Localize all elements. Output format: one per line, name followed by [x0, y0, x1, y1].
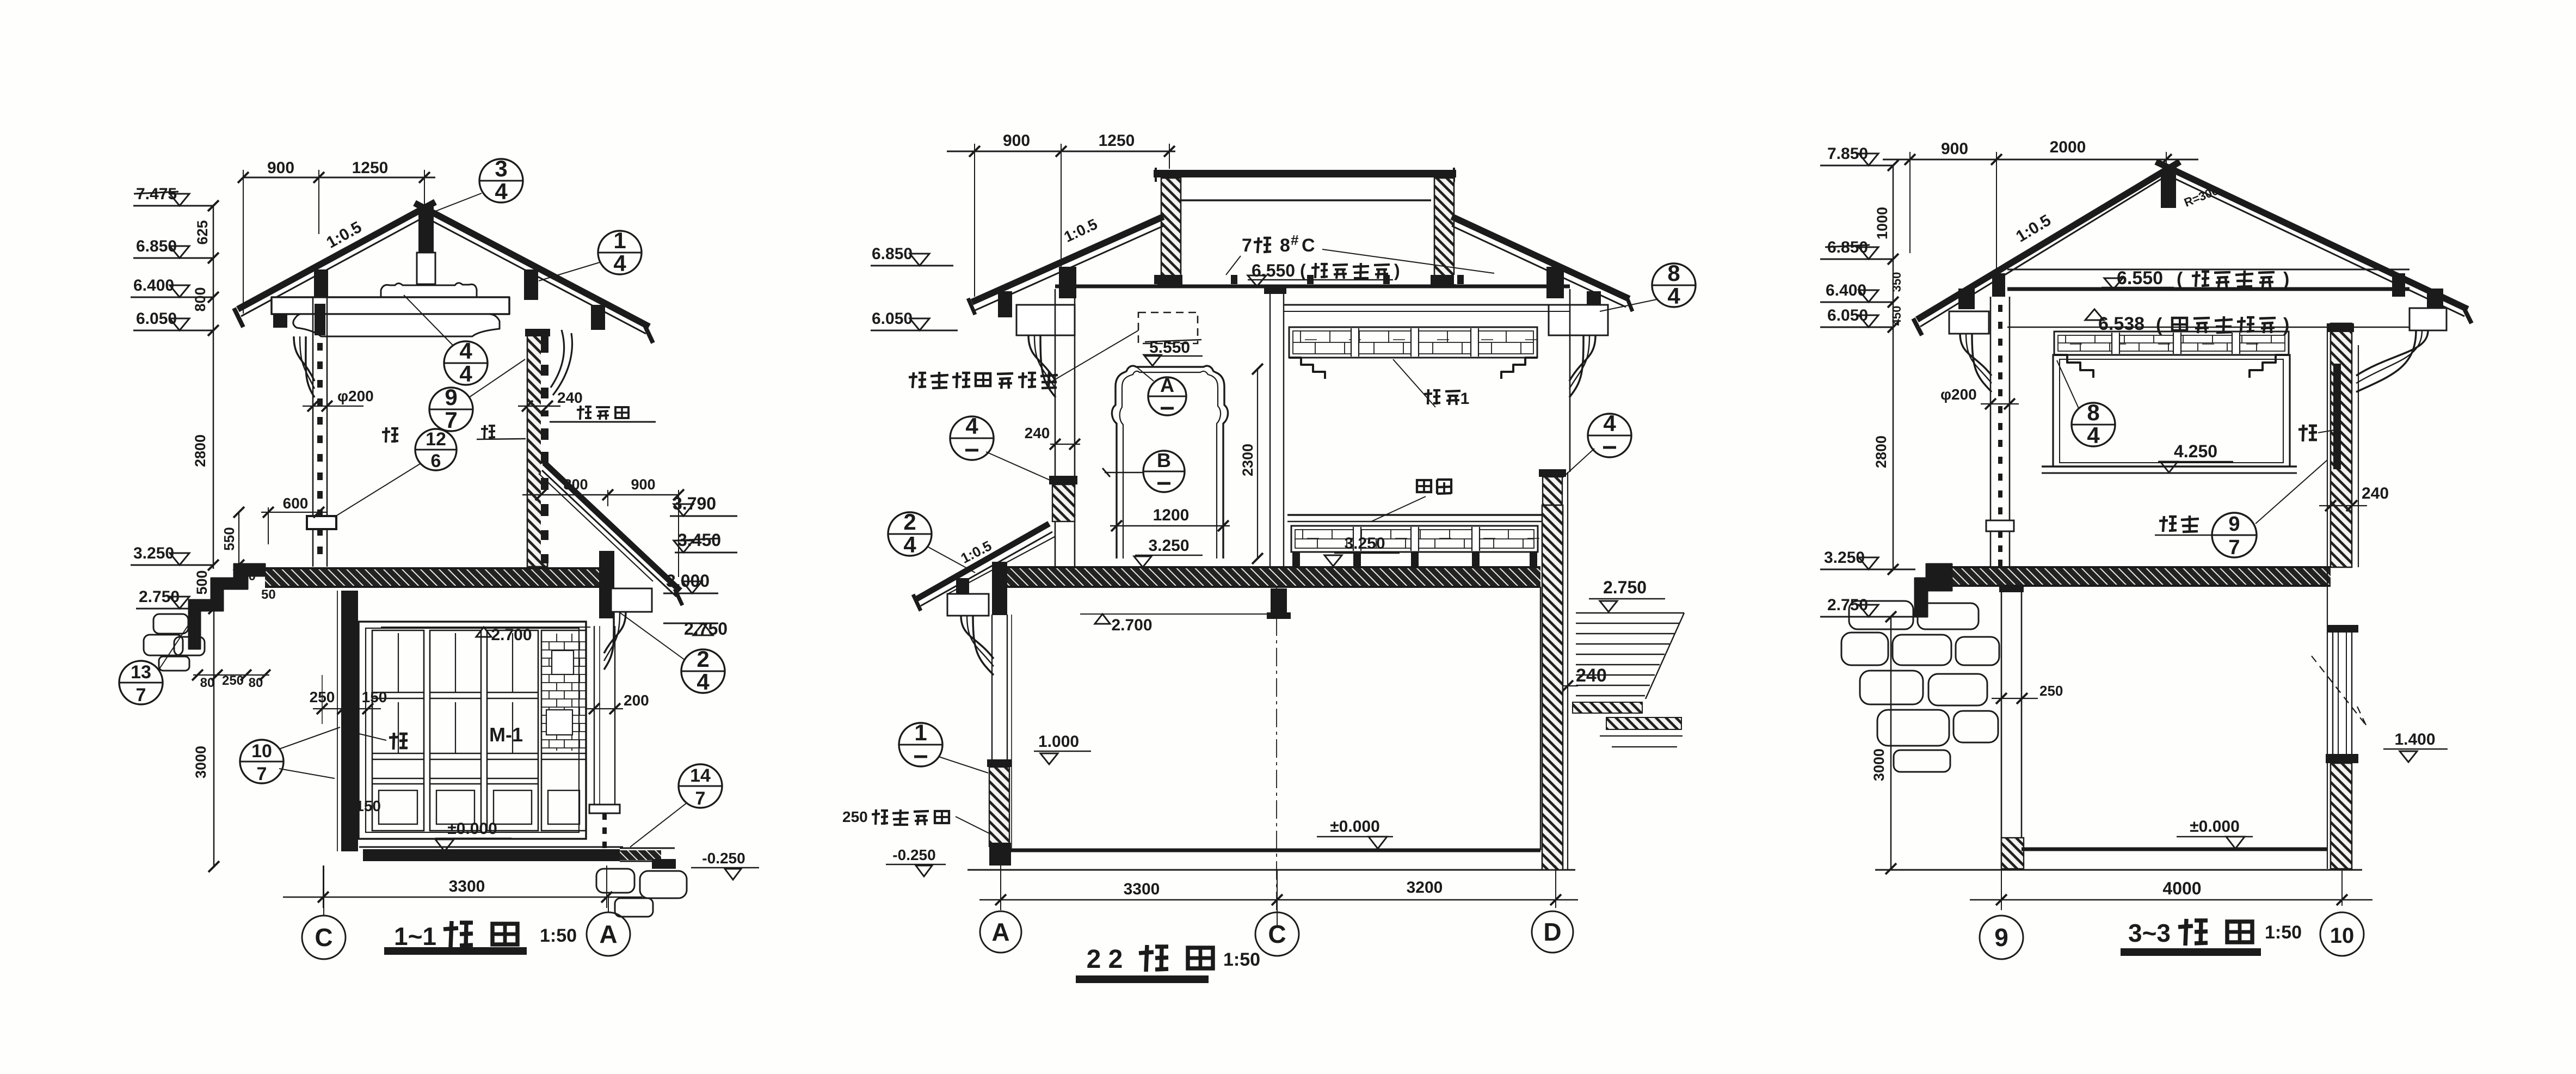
svg-text:1000: 1000 — [1874, 207, 1890, 240]
svg-text:500: 500 — [194, 570, 210, 594]
svg-text:7: 7 — [257, 764, 267, 784]
svg-text:A: A — [599, 920, 617, 948]
svg-text:7: 7 — [2228, 536, 2240, 559]
svg-text:6: 6 — [431, 451, 441, 471]
svg-text:80: 80 — [249, 676, 263, 690]
svg-text:600: 600 — [283, 495, 309, 512]
svg-text:A: A — [991, 918, 1009, 946]
svg-text:-0.250: -0.250 — [702, 850, 745, 867]
svg-text:14: 14 — [690, 765, 711, 786]
svg-text:240: 240 — [557, 389, 583, 406]
svg-text:A: A — [1160, 374, 1174, 396]
svg-text:): ) — [2283, 269, 2289, 290]
svg-text:6.850: 6.850 — [872, 245, 913, 263]
svg-text:6.550 (: 6.550 ( — [1252, 261, 1306, 280]
svg-text:4: 4 — [697, 669, 710, 695]
svg-text:φ200: φ200 — [337, 388, 374, 404]
svg-text:3~3: 3~3 — [2128, 919, 2171, 947]
svg-text:4: 4 — [613, 250, 626, 276]
svg-text:2: 2 — [903, 509, 916, 535]
svg-text:625: 625 — [194, 220, 211, 244]
svg-text:4: 4 — [1667, 283, 1680, 309]
svg-text:3200: 3200 — [1407, 879, 1443, 897]
svg-text:4: 4 — [459, 338, 472, 364]
svg-text:80: 80 — [200, 676, 215, 690]
svg-text:#: # — [1291, 232, 1299, 248]
svg-text:3: 3 — [495, 156, 507, 181]
svg-text:150: 150 — [355, 797, 381, 814]
svg-text:9: 9 — [2228, 513, 2240, 536]
svg-text:250: 250 — [842, 808, 868, 825]
svg-text:7: 7 — [1242, 235, 1252, 256]
svg-text:2000: 2000 — [2050, 138, 2086, 156]
svg-text:2: 2 — [697, 646, 709, 672]
svg-text:3300: 3300 — [1124, 880, 1160, 898]
svg-text:2 2: 2 2 — [1087, 945, 1123, 974]
svg-text:1.400: 1.400 — [2394, 731, 2435, 748]
svg-text:7: 7 — [695, 788, 706, 809]
svg-text:240: 240 — [1576, 665, 1607, 686]
svg-text:4: 4 — [495, 179, 508, 204]
svg-text:8: 8 — [1280, 235, 1290, 256]
svg-text:2300: 2300 — [1240, 444, 1256, 476]
svg-text:9: 9 — [445, 384, 457, 410]
svg-text:1250: 1250 — [352, 159, 389, 177]
svg-text:4000: 4000 — [2162, 879, 2201, 898]
svg-text:10: 10 — [2330, 924, 2355, 948]
svg-text:C: C — [1268, 920, 1286, 948]
svg-text:3.250: 3.250 — [133, 544, 174, 562]
svg-text:7: 7 — [136, 685, 146, 705]
svg-text:1~1: 1~1 — [394, 922, 436, 950]
svg-text:10: 10 — [251, 741, 272, 762]
svg-text:9: 9 — [1994, 923, 2008, 952]
svg-text:3000: 3000 — [193, 746, 209, 778]
svg-text:1: 1 — [613, 228, 626, 253]
svg-text:900: 900 — [1003, 132, 1030, 150]
svg-text:2800: 2800 — [192, 434, 208, 467]
svg-text:200: 200 — [624, 692, 649, 709]
svg-text:4: 4 — [1603, 410, 1616, 436]
svg-text:-0.250: -0.250 — [892, 846, 935, 863]
svg-text:900: 900 — [267, 159, 294, 177]
svg-text:±0.000: ±0.000 — [1330, 818, 1380, 836]
svg-text:(: ( — [2177, 269, 2183, 290]
svg-text:±0.000: ±0.000 — [447, 820, 497, 838]
svg-text:4: 4 — [2087, 422, 2100, 448]
svg-text:900: 900 — [1941, 140, 1968, 158]
svg-text:1: 1 — [1460, 390, 1470, 408]
svg-text:4: 4 — [965, 413, 978, 439]
svg-text:240: 240 — [1025, 425, 1050, 441]
svg-text:6.050: 6.050 — [872, 310, 913, 328]
svg-text:550: 550 — [221, 527, 237, 550]
svg-text:1:50: 1:50 — [540, 925, 577, 946]
svg-text:C: C — [315, 923, 332, 952]
svg-text:13: 13 — [131, 662, 151, 683]
svg-text:50: 50 — [261, 587, 276, 602]
svg-text:350: 350 — [1890, 272, 1903, 292]
svg-text:D: D — [1543, 918, 1561, 946]
svg-text:8: 8 — [2087, 400, 2099, 425]
svg-text:1:50: 1:50 — [2265, 922, 2302, 943]
svg-text:1250: 1250 — [1099, 132, 1135, 150]
svg-text:2800: 2800 — [1873, 435, 1889, 468]
svg-text:3.250: 3.250 — [1344, 535, 1385, 553]
svg-text:250: 250 — [222, 673, 244, 688]
svg-text:4: 4 — [459, 361, 472, 386]
svg-text:1200: 1200 — [1153, 506, 1190, 524]
svg-text:1: 1 — [914, 720, 927, 745]
svg-text:±0.000: ±0.000 — [2190, 818, 2240, 836]
svg-text:12: 12 — [426, 429, 446, 450]
svg-text:130: 130 — [234, 569, 256, 584]
svg-text:): ) — [1394, 261, 1400, 280]
svg-text:B: B — [1157, 449, 1171, 471]
svg-text:800: 800 — [192, 287, 208, 311]
svg-text:3300: 3300 — [449, 877, 485, 895]
svg-text:C: C — [1302, 235, 1315, 256]
svg-text:240: 240 — [2362, 484, 2389, 502]
svg-text:3000: 3000 — [1871, 748, 1887, 781]
svg-text:φ200: φ200 — [1940, 386, 1977, 403]
svg-text:7: 7 — [445, 407, 457, 433]
svg-text:2.700: 2.700 — [1111, 616, 1152, 634]
svg-text:6.400: 6.400 — [133, 277, 174, 294]
svg-text:1.000: 1.000 — [1038, 733, 1079, 751]
svg-text:450: 450 — [1890, 306, 1903, 326]
svg-text:4: 4 — [903, 532, 916, 557]
svg-text:3.250: 3.250 — [1148, 537, 1189, 555]
svg-text:1:50: 1:50 — [1223, 949, 1260, 970]
svg-text:8: 8 — [1667, 260, 1680, 286]
svg-text:250: 250 — [2039, 683, 2063, 699]
svg-text:M-1: M-1 — [489, 723, 523, 746]
svg-text:900: 900 — [631, 476, 655, 493]
svg-text:4.250: 4.250 — [2174, 441, 2217, 461]
svg-text:2.750: 2.750 — [1603, 578, 1647, 597]
